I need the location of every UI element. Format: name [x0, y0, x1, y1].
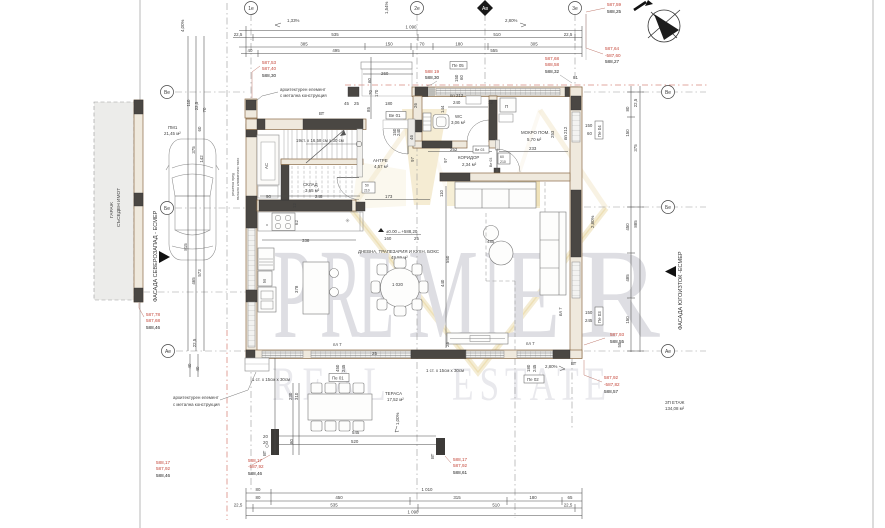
- svg-text:1,33%: 1,33%: [287, 18, 300, 23]
- svg-text:3,65 м²: 3,65 м²: [305, 188, 320, 193]
- svg-text:4,57 м²: 4,57 м²: [374, 164, 389, 169]
- svg-text:МОКРО ПОМ.: МОКРО ПОМ.: [521, 130, 550, 135]
- svg-text:Пе 03: Пе 03: [597, 311, 602, 323]
- svg-text:2е: 2е: [414, 6, 420, 12]
- svg-text:245: 245: [585, 318, 593, 323]
- svg-text:465: 465: [191, 277, 196, 285]
- svg-text:КОРИДОР: КОРИДОР: [458, 155, 479, 160]
- svg-text:1 020: 1 020: [392, 282, 404, 287]
- svg-text:25: 25: [437, 437, 442, 442]
- svg-text:40: 40: [195, 366, 200, 371]
- svg-text:СКЛАД: СКЛАД: [303, 182, 318, 187]
- svg-text:60: 60: [459, 75, 464, 80]
- svg-text:±0.00↔+588,20: ±0.00↔+588,20: [386, 229, 418, 234]
- svg-text:450: 450: [335, 495, 343, 500]
- svg-text:588,46: 588,46: [156, 473, 170, 478]
- svg-text:3,06 м²: 3,06 м²: [451, 120, 466, 125]
- svg-text:архитектурен елемент: архитектурен елемент: [280, 87, 326, 92]
- svg-text:40: 40: [187, 363, 192, 368]
- svg-text:587,93: 587,93: [610, 332, 624, 337]
- svg-text:60: 60: [500, 155, 504, 159]
- svg-text:12: 12: [292, 203, 297, 208]
- svg-text:180: 180: [526, 364, 531, 372]
- svg-text:22,5: 22,5: [192, 338, 197, 347]
- svg-text:588,32: 588,32: [545, 69, 559, 74]
- svg-text:Пе 04: Пе 04: [597, 125, 602, 137]
- svg-text:22,5: 22,5: [564, 32, 573, 37]
- svg-text:20: 20: [263, 434, 268, 439]
- svg-text:ВТ: ВТ: [430, 453, 435, 459]
- svg-text:-587,82: -587,82: [604, 382, 620, 387]
- svg-text:440: 440: [440, 279, 445, 287]
- svg-text:26: 26: [413, 103, 418, 108]
- svg-text:485: 485: [487, 239, 495, 244]
- svg-text:25: 25: [372, 351, 377, 356]
- svg-text:1 090: 1 090: [408, 510, 420, 515]
- svg-text:45: 45: [344, 101, 349, 106]
- svg-text:110: 110: [439, 189, 444, 197]
- svg-text:Ве: Ве: [164, 90, 170, 96]
- svg-text:Ве 03: Ве 03: [489, 158, 493, 167]
- svg-text:Ав: Ав: [482, 6, 488, 12]
- svg-text:378: 378: [294, 285, 299, 293]
- svg-text:245: 245: [341, 364, 346, 372]
- svg-text:22,5: 22,5: [633, 98, 638, 107]
- svg-text:520: 520: [351, 439, 359, 444]
- svg-text:ГАРАЖ: ГАРАЖ: [109, 201, 115, 218]
- svg-text:с метална конструкция: с метална конструкция: [173, 402, 220, 407]
- svg-text:ВТ: ВТ: [571, 361, 577, 366]
- svg-text:пл 7: пл 7: [333, 342, 342, 347]
- svg-text:587,64: 587,64: [605, 46, 619, 51]
- svg-text:150: 150: [625, 129, 630, 137]
- svg-text:375: 375: [191, 146, 196, 154]
- svg-text:90: 90: [266, 194, 271, 199]
- svg-text:-587,92: -587,92: [248, 464, 264, 469]
- svg-text:1е: 1е: [248, 6, 254, 12]
- svg-text:588,55: 588,55: [610, 339, 624, 344]
- svg-text:260: 260: [381, 71, 389, 76]
- svg-text:12: 12: [488, 100, 493, 105]
- svg-text:588,30: 588,30: [425, 75, 439, 80]
- svg-text:588,17: 588,17: [156, 460, 170, 465]
- svg-text:588,27: 588,27: [605, 59, 619, 64]
- svg-text:1 090: 1 090: [406, 25, 418, 30]
- svg-text:-587,60: -587,60: [605, 53, 621, 58]
- svg-text:50: 50: [365, 184, 369, 188]
- svg-text:П: П: [505, 104, 508, 109]
- svg-text:Пе 02: Пе 02: [527, 377, 539, 382]
- svg-text:40: 40: [248, 48, 253, 53]
- svg-text:495: 495: [332, 48, 340, 53]
- svg-text:587,53: 587,53: [262, 60, 276, 65]
- svg-text:240: 240: [453, 100, 461, 105]
- svg-text:588,25: 588,25: [607, 9, 621, 14]
- svg-text:2,80%: 2,80%: [505, 18, 518, 23]
- svg-text:2,34 м²: 2,34 м²: [462, 162, 477, 167]
- svg-text:ТЕРАСА: ТЕРАСА: [385, 391, 402, 396]
- svg-text:587,78: 587,78: [146, 312, 160, 317]
- svg-text:338: 338: [302, 238, 310, 243]
- svg-text:1,54%: 1,54%: [384, 1, 389, 14]
- svg-text:248: 248: [315, 194, 323, 199]
- svg-text:АНТРЕ: АНТРЕ: [373, 158, 388, 163]
- svg-text:245: 245: [532, 364, 537, 372]
- svg-text:588,61: 588,61: [453, 470, 467, 475]
- svg-text:ВТ: ВТ: [262, 450, 267, 456]
- svg-text:588,58: 588,58: [545, 62, 559, 67]
- svg-text:310: 310: [294, 392, 299, 400]
- svg-text:ПМ1: ПМ1: [168, 125, 178, 130]
- svg-text:588 19: 588 19: [425, 69, 439, 74]
- svg-text:ВТ: ВТ: [319, 111, 325, 116]
- svg-text:решетка пред: решетка пред: [231, 172, 235, 196]
- svg-text:573: 573: [197, 269, 202, 277]
- svg-text:80: 80: [289, 439, 294, 444]
- svg-text:97: 97: [410, 157, 415, 162]
- svg-text:1 ст. х 15см х 30см: 1 ст. х 15см х 30см: [252, 377, 290, 382]
- svg-text:230: 230: [288, 392, 293, 400]
- svg-text:25: 25: [414, 236, 419, 241]
- svg-text:588,57: 588,57: [604, 389, 618, 394]
- svg-text:535: 535: [331, 32, 339, 37]
- svg-text:пл 7: пл 7: [526, 341, 535, 346]
- svg-text:СЪСЕДЕН ИМОТ: СЪСЕДЕН ИМОТ: [116, 188, 122, 227]
- svg-text:ФАСАДА СЕВЕРОЗАПАД - ЕСМЕР: ФАСАДА СЕВЕРОЗАПАД - ЕСМЕР: [153, 210, 159, 302]
- svg-text:19ст. х 16,58 см х 30 см: 19ст. х 16,58 см х 30 см: [296, 138, 344, 143]
- svg-text:588,46: 588,46: [146, 325, 160, 330]
- svg-text:60: 60: [587, 131, 592, 136]
- svg-text:555: 555: [490, 48, 498, 53]
- svg-text:142: 142: [199, 155, 204, 163]
- svg-text:587,92: 587,92: [453, 463, 467, 468]
- svg-text:97: 97: [443, 158, 448, 163]
- svg-text:2,80%: 2,80%: [590, 215, 595, 228]
- svg-text:253: 253: [550, 130, 555, 138]
- svg-text:62: 62: [294, 220, 299, 225]
- svg-text:1 010: 1 010: [422, 487, 434, 492]
- svg-text:21,45 м²: 21,45 м²: [164, 131, 181, 136]
- svg-text:22,5: 22,5: [564, 503, 573, 508]
- svg-text:25: 25: [354, 101, 359, 106]
- svg-text:210: 210: [364, 189, 370, 193]
- svg-text:17,52 м²: 17,52 м²: [387, 397, 404, 402]
- svg-text:Ве 01: Ве 01: [389, 113, 401, 118]
- svg-text:46: 46: [409, 135, 414, 140]
- svg-text:587,68: 587,68: [146, 318, 160, 323]
- svg-text:Ае: Ае: [665, 349, 671, 355]
- svg-text:70: 70: [368, 90, 373, 95]
- svg-text:180: 180: [385, 101, 393, 106]
- svg-text:65: 65: [568, 495, 573, 500]
- svg-text:22,5: 22,5: [234, 503, 243, 508]
- svg-text:305: 305: [530, 42, 538, 47]
- svg-text:885: 885: [633, 220, 638, 228]
- svg-text:Бе: Бе: [665, 205, 671, 211]
- svg-text:Ве 03: Ве 03: [475, 148, 484, 152]
- svg-text:1,00%: 1,00%: [395, 412, 400, 425]
- svg-text:пп 212: пп 212: [563, 126, 568, 140]
- svg-text:Пе 01: Пе 01: [332, 376, 344, 381]
- svg-text:с метална конструкция: с метална конструкция: [280, 93, 327, 98]
- svg-text:150: 150: [585, 310, 593, 315]
- svg-text:233: 233: [529, 146, 537, 151]
- svg-text:510: 510: [492, 503, 500, 508]
- svg-text:22,5: 22,5: [234, 32, 243, 37]
- svg-text:535: 535: [330, 503, 338, 508]
- svg-text:150: 150: [585, 123, 593, 128]
- svg-text:Пе 05: Пе 05: [452, 63, 464, 68]
- svg-text:пл 7: пл 7: [558, 307, 563, 316]
- svg-text:134,08 м²: 134,08 м²: [665, 406, 685, 411]
- svg-text:144: 144: [440, 105, 445, 113]
- svg-text:АС: АС: [264, 163, 269, 169]
- svg-text:2,80%: 2,80%: [545, 364, 558, 369]
- svg-text:588,30: 588,30: [262, 73, 276, 78]
- svg-text:150: 150: [625, 316, 630, 324]
- svg-text:80: 80: [256, 495, 261, 500]
- svg-text:М: М: [262, 279, 267, 283]
- svg-text:4,00%: 4,00%: [180, 19, 185, 32]
- svg-text:60: 60: [197, 126, 202, 131]
- svg-text:Бе: Бе: [164, 206, 170, 212]
- svg-text:587,40: 587,40: [262, 66, 276, 71]
- svg-text:110: 110: [186, 99, 191, 107]
- svg-text:545: 545: [352, 430, 360, 435]
- svg-text:ФАСАДА ЮГОИЗТОК -ЕСМЕР: ФАСАДА ЮГОИЗТОК -ЕСМЕР: [678, 251, 684, 330]
- svg-text:ДНЕВНА, ТРАПЕЗАРИЯ И КУХН. БОК: ДНЕВНА, ТРАПЕЗАРИЯ И КУХН. БОКС: [358, 249, 439, 254]
- svg-text:външно климатично тяло: външно климатично тяло: [236, 158, 240, 200]
- svg-text:587,92: 587,92: [604, 375, 618, 380]
- svg-text:588,46: 588,46: [248, 471, 262, 476]
- svg-text:485: 485: [625, 274, 630, 282]
- svg-text:375: 375: [633, 144, 638, 152]
- svg-text:3е: 3е: [572, 6, 578, 12]
- svg-text:1 ст. х 15см х 30см: 1 ст. х 15см х 30см: [426, 368, 464, 373]
- svg-text:510: 510: [493, 32, 501, 37]
- svg-text:815: 815: [183, 243, 188, 251]
- svg-text:587,68: 587,68: [545, 56, 559, 61]
- svg-text:587,59: 587,59: [607, 2, 621, 7]
- svg-text:ЗП ЕТАЖ: ЗП ЕТАЖ: [665, 400, 684, 405]
- svg-text:315: 315: [453, 495, 461, 500]
- svg-text:180: 180: [455, 42, 463, 47]
- svg-text:80: 80: [256, 487, 261, 492]
- svg-text:пп 212: пп 212: [450, 93, 464, 98]
- svg-text:85: 85: [366, 107, 371, 112]
- svg-text:70: 70: [202, 107, 207, 112]
- svg-text:170: 170: [374, 89, 379, 97]
- svg-text:587,92: 587,92: [156, 466, 170, 471]
- svg-text:80: 80: [625, 106, 630, 111]
- svg-text:70: 70: [420, 42, 425, 47]
- svg-text:22,5: 22,5: [194, 101, 199, 110]
- svg-text:Ае: Ае: [165, 349, 171, 355]
- svg-text:160: 160: [384, 236, 392, 241]
- svg-text:архитектурен елемент: архитектурен елемент: [173, 395, 219, 400]
- svg-text:20: 20: [263, 440, 268, 445]
- svg-text:180: 180: [529, 495, 537, 500]
- svg-text:210: 210: [500, 160, 506, 164]
- svg-text:150: 150: [385, 42, 393, 47]
- svg-text:450: 450: [625, 223, 630, 231]
- svg-text:WC: WC: [455, 114, 462, 119]
- svg-text:Ве: Ве: [665, 90, 671, 96]
- svg-text:5,70 м²: 5,70 м²: [527, 137, 542, 142]
- svg-text:385: 385: [300, 42, 308, 47]
- svg-text:450: 450: [335, 364, 340, 372]
- svg-text:588,17: 588,17: [453, 457, 467, 462]
- svg-text:173: 173: [385, 194, 393, 199]
- svg-text:81: 81: [573, 75, 578, 80]
- svg-text:240: 240: [396, 128, 401, 136]
